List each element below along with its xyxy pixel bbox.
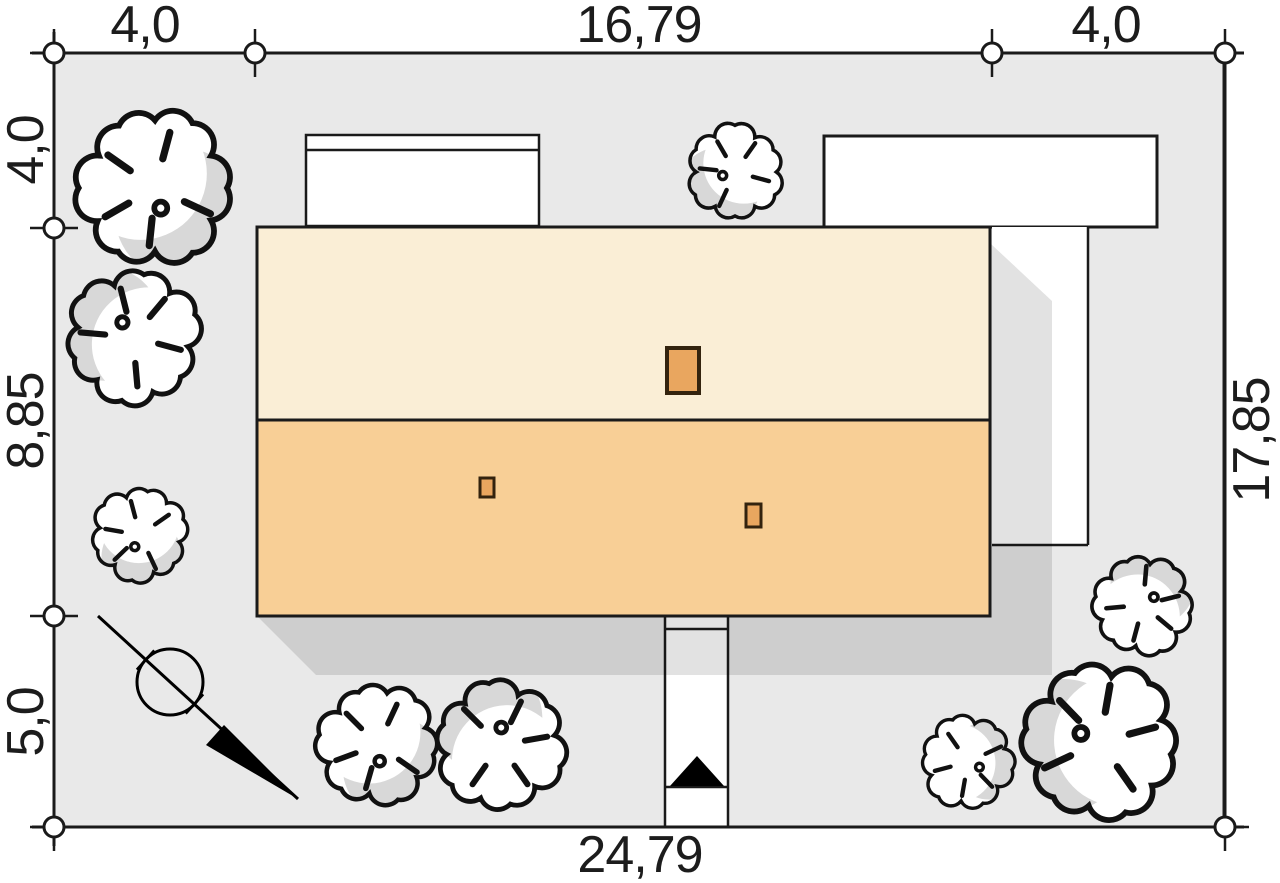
driveway [824,136,1157,227]
house-roof [257,227,990,616]
dim-label-left-middle: 8,85 [0,372,52,469]
dim-label-left-lower: 5,0 [0,687,52,756]
dim-label-top-center: 16,79 [576,0,701,51]
roof-lower [257,420,990,616]
dim-label-right: 17,85 [1226,377,1278,502]
dim-label-top-right: 4,0 [1071,0,1140,51]
dim-label-left-upper: 4,0 [0,115,52,184]
chimney [746,504,761,527]
dim-label-top-left: 4,0 [110,0,179,51]
dim-label-bottom: 24,79 [577,829,702,881]
terrace [306,135,539,226]
chimney [480,478,494,497]
site-plan: 4,0 16,79 4,0 4,0 8,85 5,0 17,85 24,79 [0,0,1280,883]
chimney [667,348,699,393]
plan-drawing [0,0,1280,883]
roof-upper [257,227,990,420]
